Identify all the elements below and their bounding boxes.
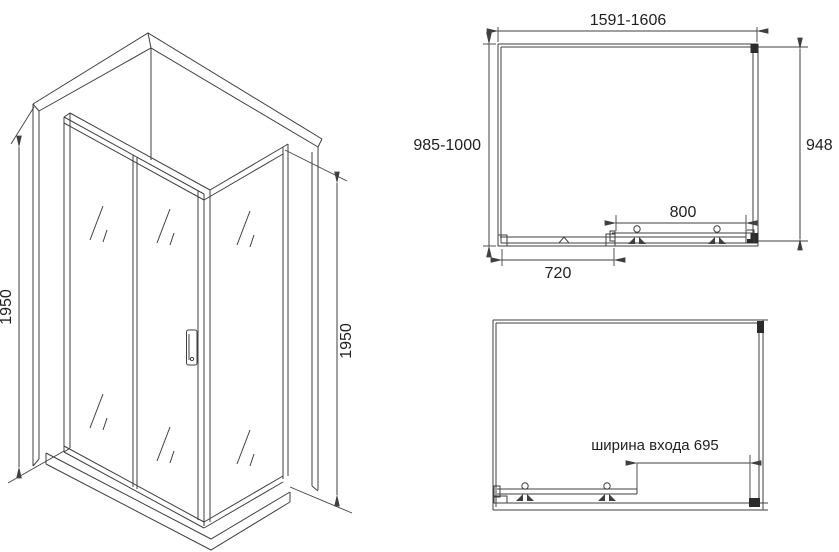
fixed-panel-rail: [498, 234, 615, 246]
panel-bracket: [751, 44, 759, 53]
dimension-height-left: 1950: [0, 107, 64, 483]
roller-icon: [708, 226, 726, 244]
enclosure-frame: [64, 113, 288, 528]
side-panel-label: 948: [806, 137, 833, 154]
height-right-label: 1950: [338, 323, 355, 359]
dimension-side-panel: 948: [758, 47, 833, 241]
dimension-depth-range: 985-1000: [413, 44, 496, 246]
top-view: 1591-1606 985-1000 948 800 720: [413, 12, 832, 282]
side-panel-top-rail: [210, 147, 283, 190]
panel-bracket: [757, 321, 764, 333]
dimension-fixed-panel: 720: [502, 248, 614, 282]
roller-icon: [628, 226, 646, 244]
dimension-entrance-width: ширина входа 695: [591, 437, 750, 499]
roller-icon: [516, 483, 534, 501]
height-left-label: 1950: [0, 289, 15, 325]
plan-open-view: ширина входа 695: [493, 320, 768, 510]
extension-line: [8, 451, 64, 483]
iso-view: 1950 1950: [0, 33, 355, 550]
rail-clamp: [559, 237, 569, 243]
wall-outline: [33, 33, 322, 491]
plan-outline: [493, 320, 768, 510]
technical-drawing-page: 1950 1950: [0, 0, 839, 552]
door-width-label: 800: [670, 204, 697, 221]
panel-bracket: [749, 498, 760, 507]
depth-range-label: 985-1000: [413, 137, 481, 154]
shower-tray: [46, 453, 290, 550]
dimension-width-range: 1591-1606: [498, 12, 757, 42]
door-top-rail: [64, 117, 204, 194]
width-range-label: 1591-1606: [590, 12, 667, 29]
fixed-panel-label: 720: [545, 265, 572, 282]
side-panel-bottom-rail: [204, 476, 283, 522]
open-sliding-door: [494, 483, 637, 501]
drawing-svg: 1950 1950: [0, 0, 839, 552]
dimension-height-right: 1950: [285, 150, 355, 513]
top-view-outline: [498, 44, 759, 246]
door-handle: [187, 330, 198, 365]
entrance-width-label: ширина входа 695: [591, 437, 719, 454]
extension-line: [285, 150, 347, 181]
extension-line: [11, 107, 34, 144]
glass-shine-marks: [90, 206, 254, 466]
sliding-door-rail: [610, 226, 754, 244]
roller-icon: [598, 483, 616, 501]
extension-line: [290, 487, 352, 513]
dimension-door-width: 800: [616, 204, 746, 231]
